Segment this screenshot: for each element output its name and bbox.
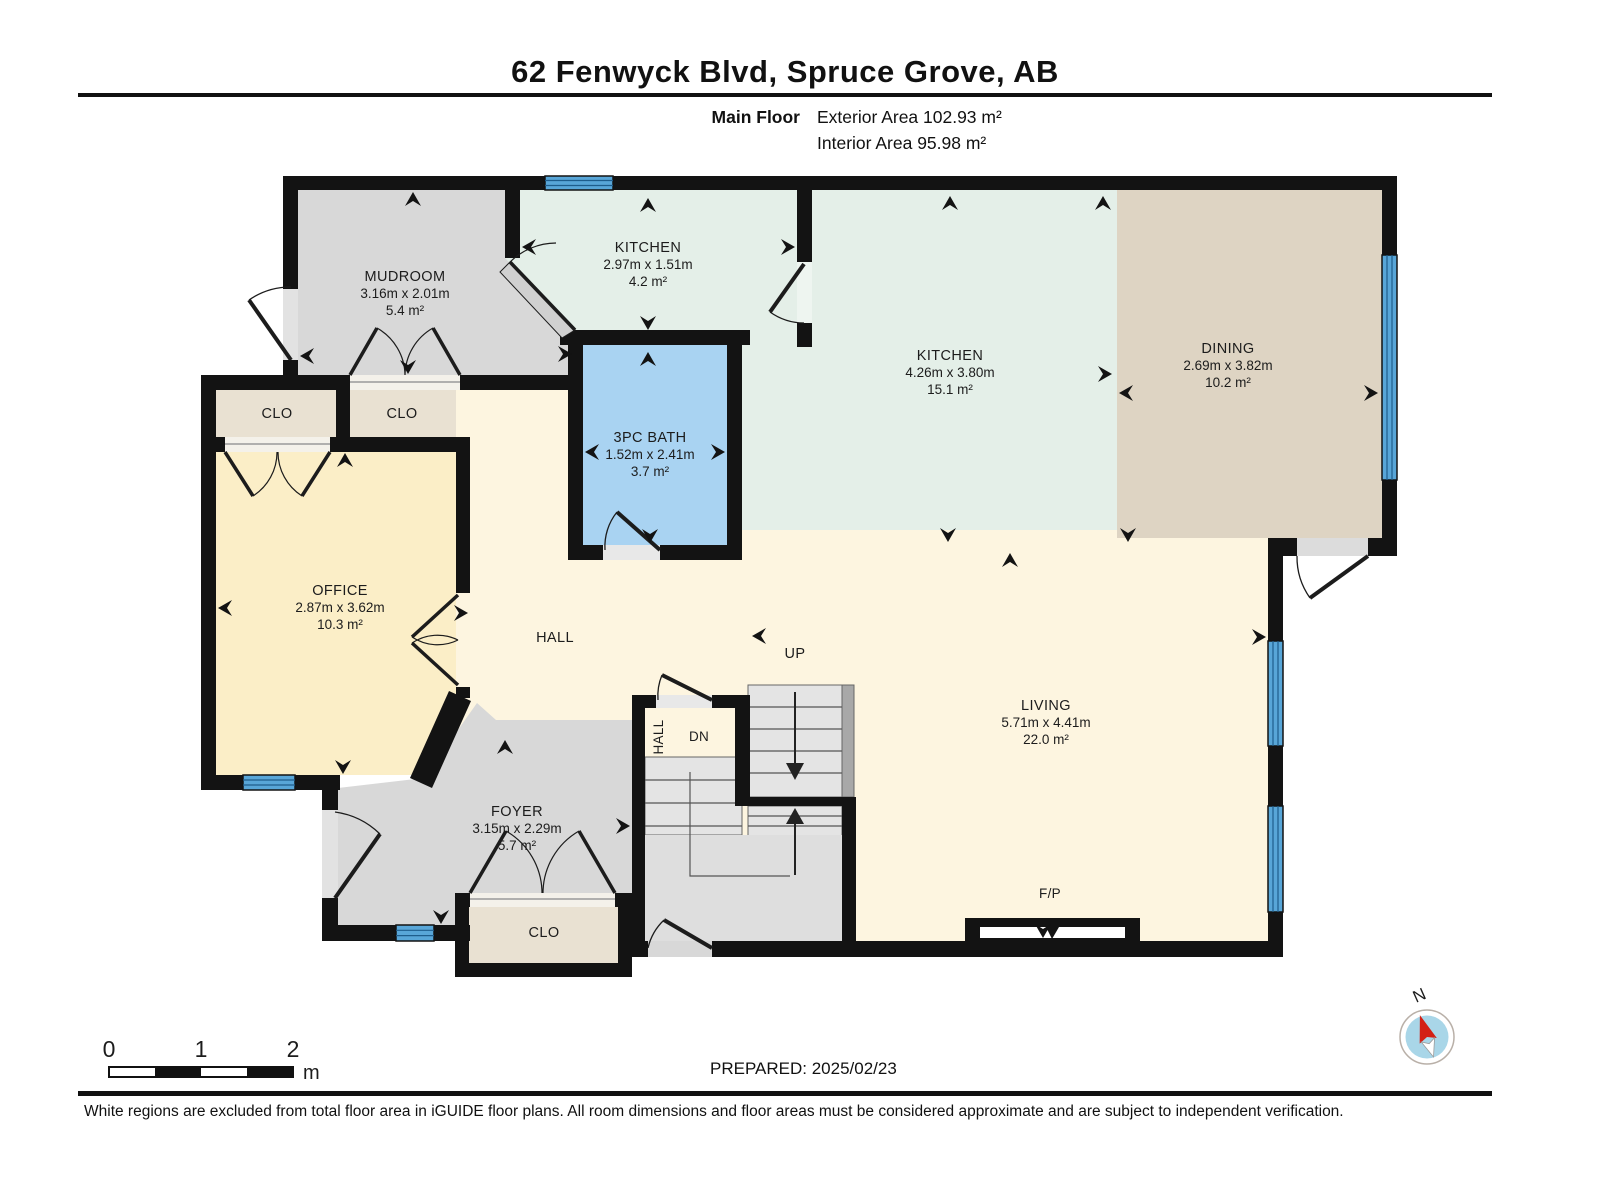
svg-text:FOYER: FOYER bbox=[491, 804, 543, 820]
kitchen-floor-lower bbox=[742, 330, 812, 530]
svg-text:KITCHEN: KITCHEN bbox=[615, 240, 681, 256]
svg-text:3PC BATH: 3PC BATH bbox=[613, 430, 686, 446]
svg-text:MUDROOM: MUDROOM bbox=[365, 269, 446, 285]
disclaimer-text: White regions are excluded from total fl… bbox=[84, 1103, 1544, 1121]
stairs-rail bbox=[842, 685, 854, 797]
svg-text:KITCHEN: KITCHEN bbox=[917, 348, 983, 364]
window-office bbox=[243, 775, 295, 790]
closet-foyer-label: CLO bbox=[528, 925, 559, 941]
window-top bbox=[545, 176, 613, 190]
scale-unit: m bbox=[303, 1062, 320, 1084]
svg-text:3.15m x 2.29m: 3.15m x 2.29m bbox=[472, 821, 561, 836]
svg-text:4.2 m²: 4.2 m² bbox=[629, 274, 668, 289]
window-living-2 bbox=[1268, 806, 1283, 912]
svg-text:4.26m x 3.80m: 4.26m x 3.80m bbox=[905, 365, 994, 380]
scale-tick-0: 0 bbox=[103, 1036, 116, 1062]
svg-text:5.71m x 4.41m: 5.71m x 4.41m bbox=[1001, 715, 1090, 730]
svg-text:10.3 m²: 10.3 m² bbox=[317, 617, 363, 632]
svg-text:22.0 m²: 22.0 m² bbox=[1023, 732, 1069, 747]
svg-text:1.52m x 2.41m: 1.52m x 2.41m bbox=[605, 447, 694, 462]
closet-left-label: CLO bbox=[261, 406, 292, 422]
stair-hall-label: HALL bbox=[651, 719, 666, 754]
svg-text:10.2 m²: 10.2 m² bbox=[1205, 375, 1251, 390]
svg-text:3.16m x 2.01m: 3.16m x 2.01m bbox=[360, 286, 449, 301]
dn-label: DN bbox=[689, 729, 709, 744]
svg-text:5.4 m²: 5.4 m² bbox=[386, 303, 425, 318]
svg-text:DINING: DINING bbox=[1201, 341, 1254, 357]
compass-north-label: N bbox=[1410, 984, 1429, 1006]
fireplace-label: F/P bbox=[1039, 886, 1061, 901]
hall-label: HALL bbox=[536, 630, 574, 646]
scale-tick-2: 2 bbox=[287, 1036, 300, 1062]
window-dining bbox=[1382, 255, 1397, 480]
up-label: UP bbox=[785, 646, 806, 662]
window-living-1 bbox=[1268, 641, 1283, 746]
floorplan-page: { "header": { "title": "62 Fenwyck Blvd,… bbox=[0, 0, 1600, 1200]
svg-text:5.7 m²: 5.7 m² bbox=[498, 838, 537, 853]
svg-text:LIVING: LIVING bbox=[1021, 698, 1071, 714]
scale-tick-1: 1 bbox=[195, 1036, 208, 1062]
svg-text:2.69m x 3.82m: 2.69m x 3.82m bbox=[1183, 358, 1272, 373]
floorplan-canvas: MUDROOM3.16m x 2.01m5.4 m² KITCHEN2.97m … bbox=[0, 0, 1600, 1200]
svg-text:15.1 m²: 15.1 m² bbox=[927, 382, 973, 397]
svg-text:2.97m x 1.51m: 2.97m x 1.51m bbox=[603, 257, 692, 272]
closet-right-label: CLO bbox=[386, 406, 417, 422]
footer-divider bbox=[78, 1091, 1492, 1096]
svg-text:3.7 m²: 3.7 m² bbox=[631, 464, 670, 479]
compass: N bbox=[1400, 984, 1454, 1064]
window-foyer bbox=[396, 925, 434, 941]
door-dining-exterior bbox=[1297, 556, 1368, 598]
prepared-date: PREPARED: 2025/02/23 bbox=[710, 1059, 897, 1079]
stairs-left-treads bbox=[645, 757, 742, 835]
fireplace bbox=[965, 918, 1140, 941]
scale-bar: 0 1 2 m bbox=[103, 1036, 320, 1084]
svg-text:OFFICE: OFFICE bbox=[312, 583, 368, 599]
svg-text:2.87m x 3.62m: 2.87m x 3.62m bbox=[295, 600, 384, 615]
